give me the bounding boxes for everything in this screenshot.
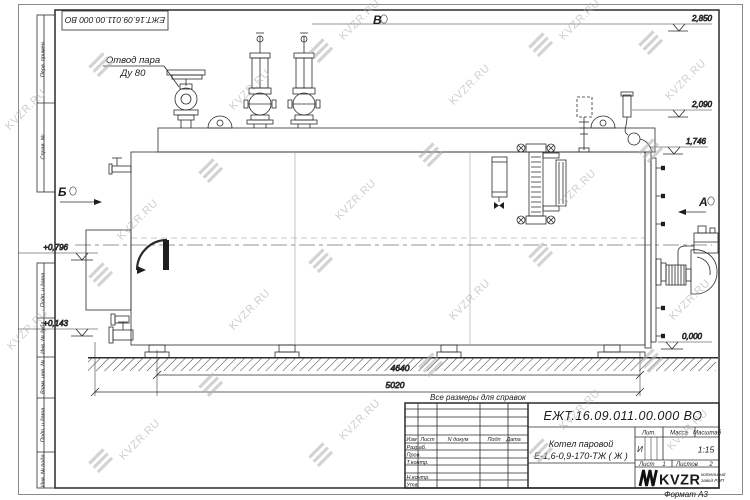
lit-label: Лит.	[641, 431, 656, 437]
scale-label: Масштаб	[693, 431, 722, 437]
kvzr-logo: KVZR котельный завод РЭП	[640, 470, 726, 489]
watermark-logo-icon	[638, 138, 663, 163]
left-wall-valve	[109, 158, 131, 174]
sheets-label: Листов	[675, 462, 698, 468]
watermark-logo-icon	[88, 262, 113, 287]
watermark-text: KVZR.RU	[663, 57, 709, 103]
dim-4640: 4640	[391, 363, 410, 373]
watermark-text: KVZR.RU	[557, 0, 603, 43]
sheet-value: 1	[662, 462, 665, 468]
watermark-text: KVZR.RU	[115, 197, 161, 243]
level-2850: 2,850	[691, 14, 713, 23]
sheets-value: 2	[708, 462, 713, 468]
logo-name: KVZR	[659, 473, 701, 489]
logo-caption-2: завод РЭП	[700, 478, 725, 483]
stamp-inv-podl: Инв. № подл.	[41, 453, 47, 487]
view-label-a: А	[678, 195, 714, 215]
watermark-logo-icon	[418, 142, 443, 167]
level-1746: 1,746	[686, 137, 707, 146]
drain-fittings	[109, 314, 133, 343]
view-label-v: В	[373, 13, 387, 27]
watermark-text: KVZR.RU	[227, 287, 273, 333]
watermark-text: KVZR.RU	[337, 397, 383, 443]
watermark-logo-icon	[418, 352, 443, 377]
row-t-kontr: Т.контр.	[407, 460, 429, 466]
col-podp: Подп	[487, 437, 500, 443]
level-2090: 2,090	[691, 100, 713, 109]
callout-line1: Отвод пара	[106, 55, 160, 66]
boiler-technical-drawing: Перв. примен. Справ. № Подп. и дата Инв.…	[0, 0, 750, 500]
spring-icon	[640, 470, 657, 486]
product-name-line1: Котел паровой	[549, 439, 614, 449]
watermark-logo-icon	[528, 32, 553, 57]
steam-outlet-callout: Отвод пара Ду 80	[103, 55, 179, 87]
level-gauge	[492, 144, 566, 224]
scale-value: 1:15	[698, 445, 715, 455]
level-0796: +0,796	[43, 243, 68, 252]
watermark-text: KVZR.RU	[117, 417, 163, 463]
dim-5020: 5020	[386, 380, 405, 390]
logo-caption-1: котельный	[701, 471, 726, 477]
watermark-text: KVZR.RU	[553, 167, 599, 213]
watermark-logo-icon	[198, 158, 223, 183]
probe-and-dashed-box	[577, 97, 592, 152]
stamp-sprav-no: Справ. №	[41, 134, 47, 159]
view-a-letter: А	[698, 195, 708, 209]
row-prov: Пров.	[407, 453, 422, 459]
drawing-sheet: Перв. примен. Справ. № Подп. и дата Инв.…	[0, 0, 750, 500]
support-feet	[145, 345, 645, 358]
stamp-podp-data-1: Подп. и дата	[41, 273, 47, 307]
lifting-lug-left	[208, 116, 232, 128]
watermark-layer: KVZR.RU KVZR.RU KVZR.RU KVZR.RU KVZR.RU …	[3, 0, 713, 473]
format-label: Формат А3	[664, 490, 708, 499]
sensor-cable	[621, 92, 652, 152]
sheet-label: Лист	[638, 462, 654, 468]
top-stamp-doc-number: ЕЖТ.16.09.011.00.000 ВО	[64, 15, 165, 25]
watermark-logo-icon	[638, 30, 663, 55]
stamp-vzam-inv: Взам. инв. №	[41, 360, 47, 394]
row-razrab: Разраб.	[407, 445, 427, 451]
view-label-b: Б	[58, 185, 102, 205]
callout-line2: Ду 80	[120, 68, 146, 79]
watermark-text: KVZR.RU	[227, 67, 273, 113]
watermark-text: KVZR.RU	[667, 277, 713, 323]
watermark-text: KVZR.RU	[333, 177, 379, 223]
col-data: Дата	[505, 437, 521, 443]
col-izm: Изм	[406, 437, 416, 443]
lifting-lug-right	[591, 116, 615, 128]
reference-note: Все размеры для справок	[430, 393, 527, 402]
row-utv: Утв.	[406, 483, 420, 489]
watermark-logo-icon	[308, 442, 333, 467]
boiler-view: Отвод пара Ду 80	[18, 13, 718, 402]
watermark-text: KVZR.RU	[3, 87, 49, 133]
watermark-text: KVZR.RU	[447, 62, 493, 108]
watermark-logo-icon	[88, 448, 113, 473]
watermark-logo-icon	[198, 372, 223, 397]
col-n-dokum: N докум	[448, 437, 469, 443]
stamp-podp-data-2: Подп. и дата	[41, 408, 47, 442]
rear-end-plate	[645, 152, 665, 348]
watermark-logo-icon	[528, 242, 553, 267]
level-0000: 0,000	[682, 332, 703, 341]
view-b-letter: Б	[58, 185, 67, 199]
row-n-kontr: Н.контр.	[407, 475, 430, 481]
watermark-logo-icon	[308, 248, 333, 273]
level-0143: +0,143	[43, 319, 68, 328]
lit-value: И	[637, 445, 643, 454]
col-list: Лист	[419, 437, 435, 443]
stamp-perv-primen: Перв. примен.	[41, 41, 47, 78]
